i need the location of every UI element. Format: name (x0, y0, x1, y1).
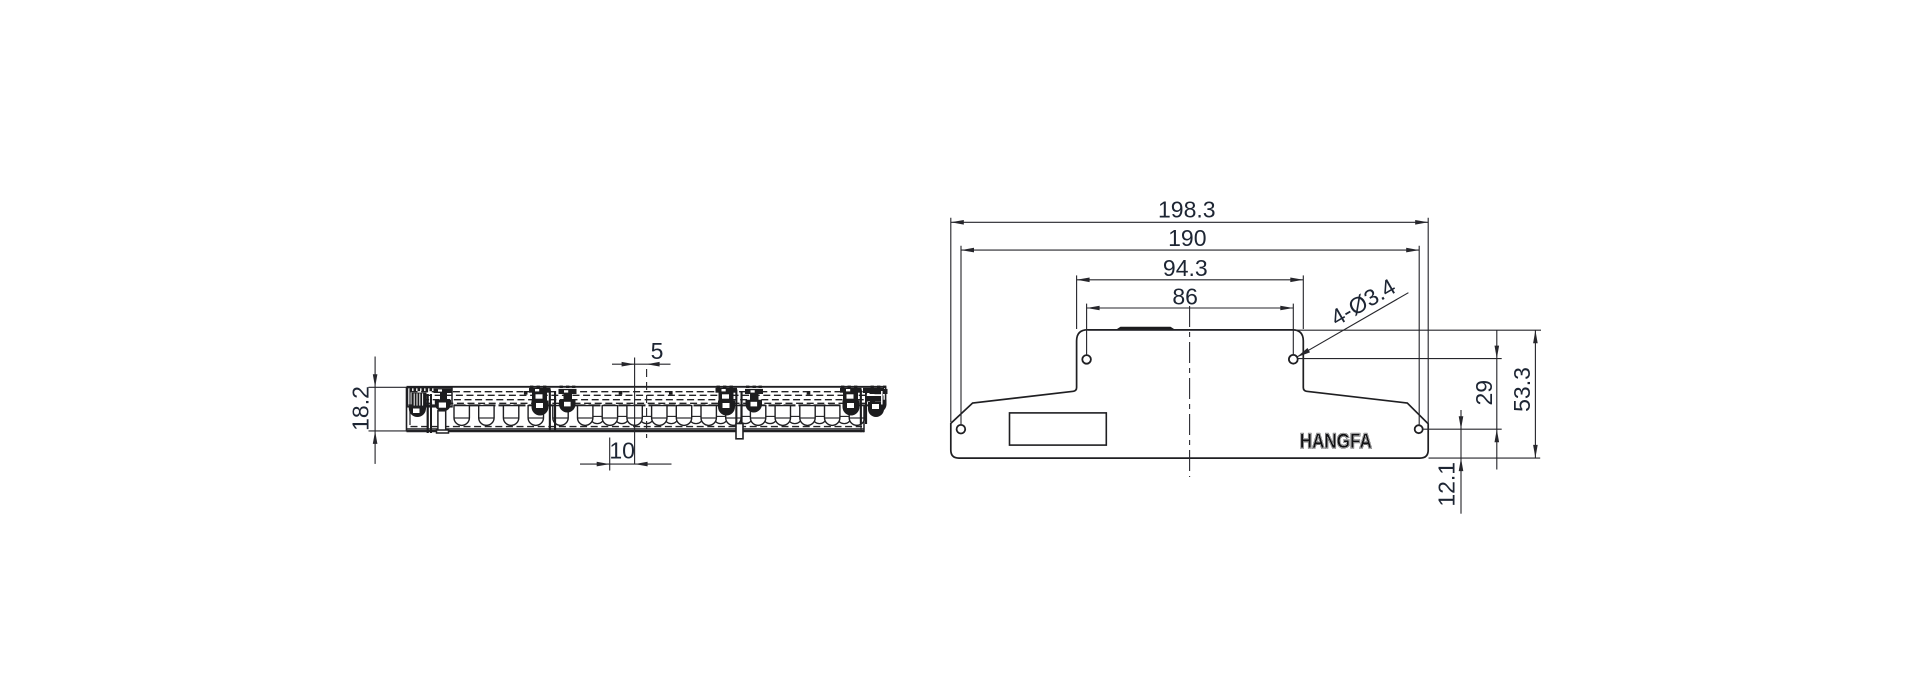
svg-text:12.1: 12.1 (1433, 462, 1459, 507)
svg-text:198.3: 198.3 (1158, 196, 1216, 222)
svg-text:94.3: 94.3 (1163, 255, 1208, 281)
svg-text:190: 190 (1168, 225, 1206, 251)
svg-text:29: 29 (1471, 380, 1497, 406)
svg-text:18.2: 18.2 (348, 386, 374, 431)
svg-text:53.3: 53.3 (1509, 367, 1535, 412)
svg-text:HANGFA: HANGFA (1300, 429, 1372, 453)
svg-text:10: 10 (609, 438, 635, 464)
svg-text:86: 86 (1172, 283, 1198, 309)
svg-text:5: 5 (651, 338, 664, 364)
